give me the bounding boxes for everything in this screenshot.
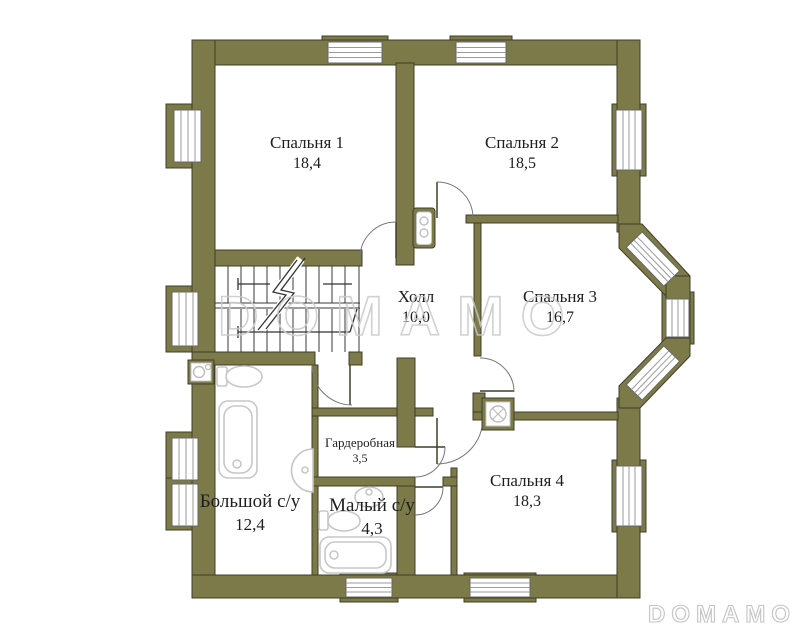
room-area: 18,3 (490, 494, 564, 510)
door-swing (360, 222, 396, 258)
window (328, 42, 382, 63)
floor-plan: Спальня 1 18,4 Спальня 2 18,5 Спальня 3 … (0, 0, 800, 632)
room-name: Гардеробная (325, 436, 395, 449)
room-name: Спальня 2 (485, 134, 559, 151)
watermark-corner: DOMAMO (648, 601, 796, 629)
window (172, 292, 198, 346)
fixtures (217, 366, 391, 573)
room-label-bedroom-4: Спальня 4 18,3 (490, 472, 564, 510)
room-name: Большой с/у (200, 492, 301, 511)
vent-fan-icon (482, 398, 514, 430)
window (470, 578, 530, 597)
room-area: 18,4 (270, 156, 344, 172)
toilet-icon (217, 366, 262, 387)
watermark-center: DOMAMO (218, 283, 581, 348)
room-area: 4,3 (329, 520, 415, 537)
window (616, 110, 642, 170)
bathtub-icon (320, 537, 391, 573)
door-swing (415, 447, 445, 477)
room-label-bathroom-small: Малый с/у 4,3 (329, 496, 415, 537)
vent-fan-icon (413, 208, 435, 248)
sink-icon (292, 449, 314, 492)
bathtub-icon (219, 401, 257, 478)
window (616, 466, 642, 526)
window (172, 484, 198, 526)
room-label-bathroom-large: Большой с/у 12,4 (200, 492, 301, 533)
window (456, 42, 506, 63)
window (346, 578, 392, 597)
door-swing (437, 418, 483, 464)
room-area: 12,4 (200, 516, 301, 533)
room-label-bedroom-1: Спальня 1 18,4 (270, 134, 344, 172)
window (172, 438, 198, 480)
door-swing (437, 182, 473, 218)
room-area: 18,5 (485, 156, 559, 172)
room-name: Малый с/у (329, 496, 415, 515)
room-area: 3,5 (325, 452, 395, 464)
door-swing (480, 358, 514, 392)
room-label-bedroom-2: Спальня 2 18,5 (485, 134, 559, 172)
room-name: Спальня 1 (270, 134, 344, 151)
room-label-wardrobe: Гардеробная 3,5 (325, 436, 395, 464)
window (174, 110, 201, 162)
vent-fan-icon (188, 360, 214, 384)
room-name: Спальня 4 (490, 472, 564, 489)
window (666, 299, 689, 337)
door-swing (415, 487, 443, 515)
